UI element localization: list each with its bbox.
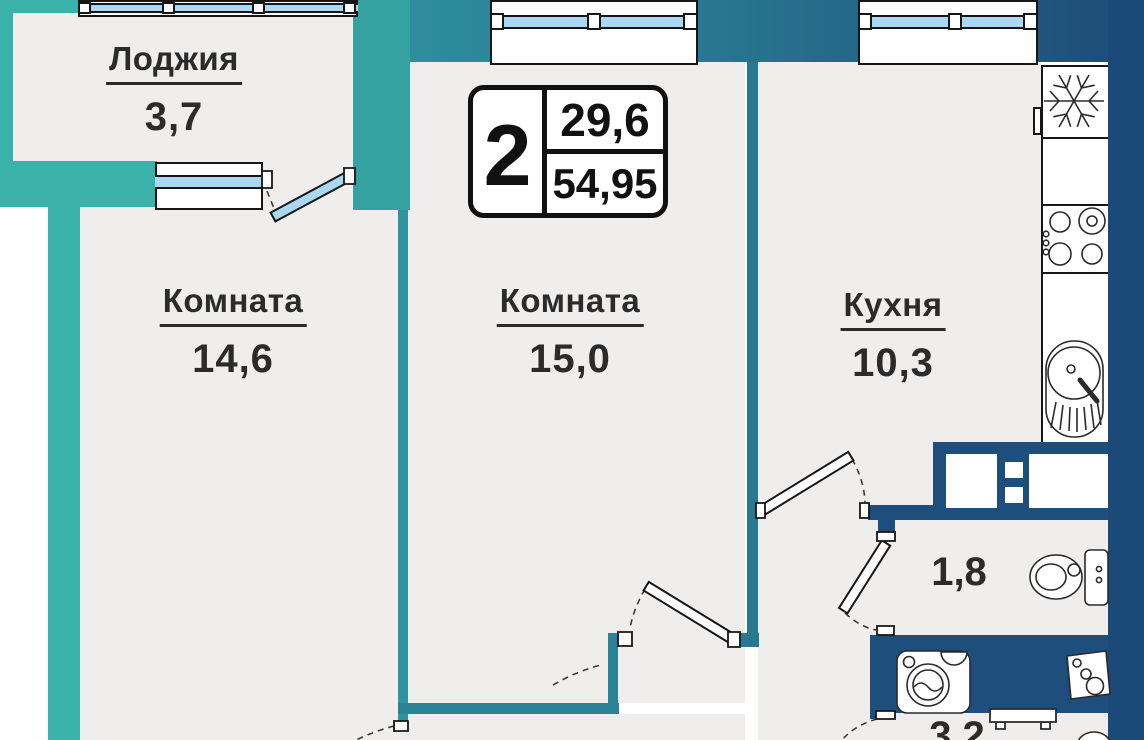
living-area: 29,6 [547, 90, 663, 154]
room-name: Комната [160, 282, 307, 327]
toilet-partial-icon [1077, 732, 1111, 740]
label-room2: Комната 15,0 [497, 282, 644, 382]
room-name: Лоджия [106, 40, 242, 85]
balcony-door-leaf [271, 172, 351, 222]
door-jambs [262, 168, 895, 731]
bath-sink-icon [1067, 651, 1110, 699]
rooms-count: 2 [473, 90, 547, 213]
label-room1: Комната 14,6 [160, 282, 307, 382]
stove-burners-icon [1043, 208, 1105, 265]
towel-rail-icon [990, 709, 1056, 729]
room-area: 1,8 [931, 550, 987, 594]
total-area: 54,95 [547, 154, 663, 213]
area-badge: 2 29,6 54,95 [468, 85, 668, 218]
label-wc: 1,8 [931, 550, 987, 595]
room-area: 14,6 [160, 337, 307, 382]
fridge-snowflake-icon [1044, 70, 1104, 132]
wc-door-leaf [839, 540, 890, 613]
label-loggia: Лоджия 3,7 [106, 40, 242, 140]
washing-machine-icon [897, 651, 970, 713]
label-bathroom: 3,2 [929, 714, 985, 740]
room-area: 15,0 [497, 337, 644, 382]
vent-niches [946, 454, 1108, 508]
kitchen-door-leaf [760, 452, 853, 514]
toilet-icon [1030, 550, 1108, 605]
room-name: Комната [497, 282, 644, 327]
room2-door-leaf [644, 582, 737, 644]
room-area: 3,7 [106, 95, 242, 140]
label-kitchen: Кухня 10,3 [841, 286, 946, 386]
room-area: 10,3 [841, 341, 946, 386]
room-area: 3,2 [929, 714, 985, 740]
floor-plan: 2 29,6 54,95 Лоджия 3,7 Комната 14,6 Ком… [0, 0, 1144, 740]
room-name: Кухня [841, 286, 946, 331]
door-arcs [267, 191, 877, 740]
kitchen-sink-icon [1046, 341, 1103, 437]
